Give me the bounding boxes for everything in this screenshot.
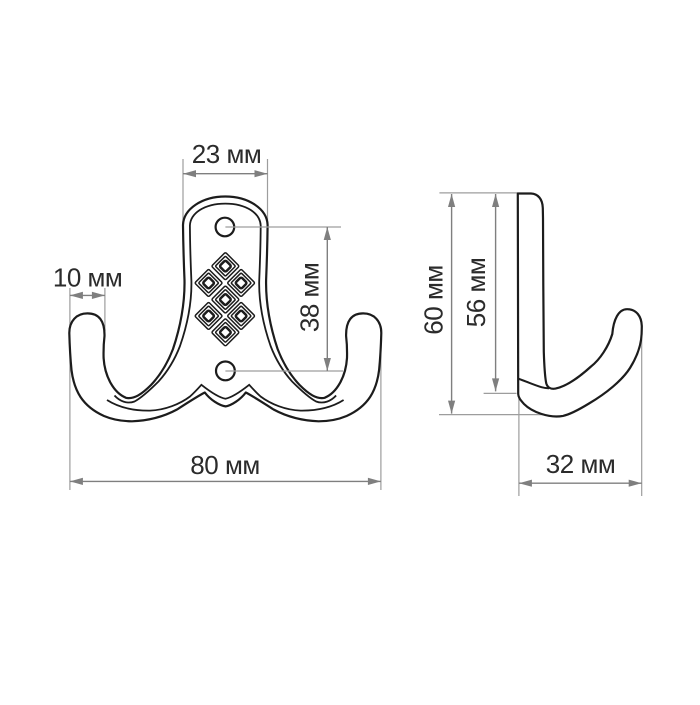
svg-text:56 мм: 56 мм — [461, 258, 491, 327]
svg-text:23 мм: 23 мм — [192, 139, 261, 169]
svg-text:38 мм: 38 мм — [295, 263, 325, 332]
svg-text:10 мм: 10 мм — [53, 262, 122, 292]
svg-text:32 мм: 32 мм — [546, 449, 615, 479]
svg-text:60 мм: 60 мм — [419, 265, 449, 334]
svg-text:80 мм: 80 мм — [190, 450, 259, 480]
